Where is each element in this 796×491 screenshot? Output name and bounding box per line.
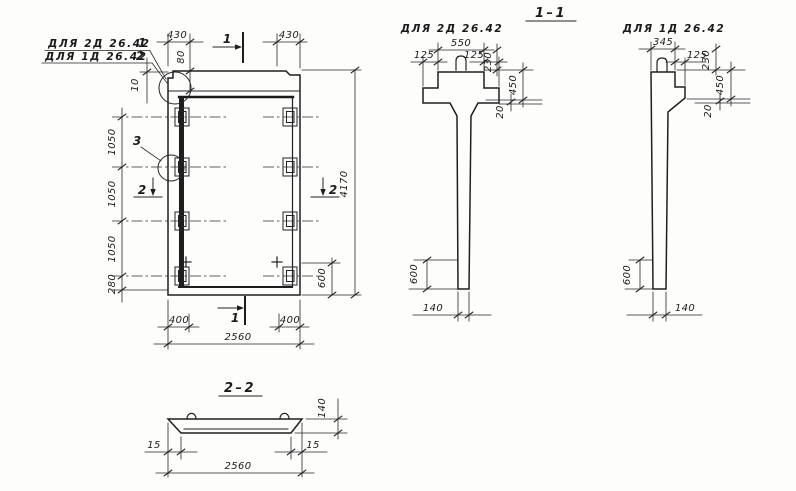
section-1-1-title: 1–1: [535, 6, 567, 21]
dim-430-right: 430: [279, 30, 299, 41]
cross-marks: [181, 257, 282, 267]
section-cut-1: 1 1: [213, 32, 245, 325]
note-line2-pos: 2: [136, 49, 144, 63]
dim-550: 550: [451, 38, 471, 49]
dim-400-right: 400: [280, 315, 300, 326]
section-2-2-title: 2–2: [224, 381, 256, 396]
rib-section-outline: [423, 72, 499, 289]
dim-15-right: 15: [306, 440, 320, 451]
dim-345: 345: [653, 37, 673, 48]
section-alt-variant: ДЛЯ 1Д 26.42: [622, 23, 726, 35]
rib-section-alt-outline: [651, 72, 685, 289]
dim-140-slab: 140: [317, 398, 328, 418]
hook-right: [280, 413, 289, 419]
dim-4170: 4170: [339, 170, 350, 197]
dim-280: 280: [107, 274, 118, 294]
note-line1-pos: 1: [138, 36, 146, 50]
dim-2560-slab: 2560: [224, 461, 251, 472]
cut1-top-label: 1: [223, 32, 231, 46]
dim-140-alt: 140: [675, 303, 695, 314]
cut2-right-label: 2: [329, 183, 337, 197]
dim-1050-c: 1050: [107, 235, 118, 262]
dim-20: 20: [495, 105, 506, 119]
corner-detail-circle: [159, 72, 191, 104]
drawing-sheet: 1050 1050 1050 280 430 80 430 10: [0, 0, 796, 491]
dim-600-mid: 600: [409, 264, 420, 284]
slab-section-outline: [168, 419, 302, 433]
detail-3-label: 3: [133, 134, 141, 148]
lifting-loop-alt: [657, 58, 667, 72]
cut2-left-label: 2: [138, 183, 146, 197]
dim-600-alt: 600: [622, 265, 633, 285]
section-1-1-variant: ДЛЯ 2Д 26.42: [400, 23, 504, 35]
section-1-1: 1–1 ДЛЯ 2Д 26.42 550 125 125 230 450 20: [400, 6, 576, 321]
dim-430-left: 430: [167, 30, 187, 41]
dim-450-alt: 450: [715, 75, 726, 95]
note-line2: ДЛЯ 1Д 26.42: [44, 51, 148, 63]
dim-125-left: 125: [414, 50, 434, 61]
cut1-bottom-label: 1: [231, 311, 239, 325]
dim-450: 450: [508, 75, 519, 95]
panel-drawing: 1050 1050 1050 280 430 80 430 10: [0, 0, 796, 491]
section-1-1-alt: ДЛЯ 1Д 26.42 345 125 230 450 20 600: [622, 23, 750, 321]
dim-230: 230: [483, 52, 494, 72]
dim-1050-b: 1050: [107, 180, 118, 207]
dim-2560-front: 2560: [224, 332, 251, 343]
dim-125-right: 125: [464, 50, 484, 61]
dim-1050-a: 1050: [107, 128, 118, 155]
dim-80: 80: [176, 50, 187, 64]
hook-left: [187, 413, 196, 419]
dim-600-right: 600: [317, 268, 328, 288]
section-2-2: 2–2 140 15 15 2560: [145, 381, 347, 477]
dim-400-left: 400: [169, 315, 189, 326]
dim-10: 10: [130, 78, 141, 92]
dim-140-mid: 140: [423, 303, 443, 314]
top-dims: 430 80 430 10: [130, 30, 307, 103]
dim-15-left: 15: [147, 440, 161, 451]
dim-20-alt: 20: [703, 104, 714, 118]
front-view: 1050 1050 1050 280 430 80 430 10: [42, 30, 361, 349]
section-cut-2: 2 2: [134, 178, 339, 197]
dim-230-alt: 230: [701, 50, 712, 70]
